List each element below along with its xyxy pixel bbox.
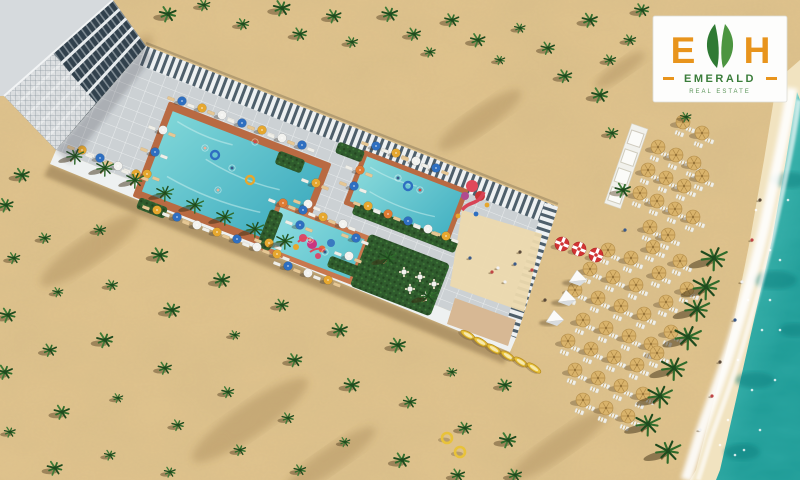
umbrella-apex <box>636 364 638 366</box>
umbrella-apex <box>299 224 301 226</box>
palm-crown <box>426 294 429 297</box>
chair <box>415 276 417 278</box>
table <box>417 274 422 279</box>
bush-center <box>3 370 7 374</box>
bush-center <box>351 41 354 44</box>
foam-fleck <box>779 329 782 332</box>
umbrella-apex <box>287 265 289 267</box>
bush-center <box>598 93 602 97</box>
umbrella-apex <box>628 335 630 337</box>
person-dot <box>518 250 521 253</box>
bush-center <box>476 38 479 41</box>
swimmer-dot <box>309 239 312 242</box>
splash-toy <box>315 253 321 259</box>
bush-center <box>503 383 506 386</box>
umbrella-apex <box>395 152 397 154</box>
umbrella-apex <box>146 173 148 175</box>
person-dot <box>503 280 506 283</box>
palm-crown <box>386 256 389 259</box>
bush-center <box>109 454 112 457</box>
foam-fleck <box>737 359 740 362</box>
umbrella-apex <box>656 352 658 354</box>
foam-fleck <box>719 444 722 447</box>
bush-center <box>234 334 236 336</box>
umbrella-apex <box>613 356 615 358</box>
resort-aerial-render: E H EMERALD REAL ESTATE <box>0 0 800 480</box>
palm-crown <box>672 366 677 371</box>
person-dot <box>543 298 546 301</box>
person-dot <box>623 228 626 231</box>
palm-crown <box>712 256 717 261</box>
umbrella-apex <box>667 234 669 236</box>
swimmer-dot <box>254 141 257 144</box>
logo-brand-text: EMERALD <box>684 73 756 85</box>
bush-center <box>546 46 549 49</box>
umbrella-apex <box>181 100 183 102</box>
umbrella-apex <box>196 224 198 226</box>
umbrella-apex <box>276 253 278 255</box>
person-dot <box>490 270 493 273</box>
bush-center <box>163 366 166 369</box>
bush-center <box>9 431 12 434</box>
foam-fleck <box>787 199 790 202</box>
umbrella-apex <box>574 369 576 371</box>
umbrella-apex <box>156 209 158 211</box>
umbrella-apex <box>630 257 632 259</box>
umbrella-apex <box>307 272 309 274</box>
umbrella-apex <box>327 279 329 281</box>
deep-water-patch <box>735 372 775 388</box>
bush-center <box>629 39 632 42</box>
person-dot <box>530 268 533 271</box>
bush-center <box>298 32 301 35</box>
bush-center <box>412 32 415 35</box>
chair <box>429 283 431 285</box>
bush-center <box>611 132 614 135</box>
palm-crown <box>704 285 709 290</box>
umbrella-apex <box>236 238 238 240</box>
bush-center <box>111 284 114 287</box>
palm-crown <box>193 203 196 206</box>
bush-center <box>621 188 625 192</box>
foam-fleck <box>769 299 772 302</box>
foam-fleck <box>774 379 777 382</box>
umbrella-apex <box>635 284 637 286</box>
foam-fleck <box>747 299 750 302</box>
palm-crown <box>646 422 650 426</box>
table <box>401 269 406 274</box>
bush-center <box>44 237 47 240</box>
umbrella-apex <box>597 377 599 379</box>
bush-center <box>563 74 566 77</box>
bush-center <box>456 473 459 476</box>
logo-dash-right <box>766 77 777 80</box>
umbrella-apex <box>302 209 304 211</box>
umbrella-apex <box>643 313 645 315</box>
umbrella-apex <box>427 228 429 230</box>
foam-fleck <box>734 454 737 457</box>
person-dot <box>513 262 516 265</box>
bush-center <box>463 426 466 429</box>
bush-center <box>280 6 284 10</box>
bush-center <box>177 424 180 427</box>
float-center <box>594 253 598 257</box>
umbrella-apex <box>665 301 667 303</box>
bush-center <box>166 12 170 16</box>
umbrella-apex <box>657 146 659 148</box>
bush-center <box>513 473 516 476</box>
umbrella-apex <box>435 167 437 169</box>
umbrella-apex <box>256 246 258 248</box>
scene-canvas: E H EMERALD REAL ESTATE <box>0 0 800 480</box>
umbrella-apex <box>652 246 654 248</box>
umbrella-apex <box>620 305 622 307</box>
bush-center <box>239 449 242 452</box>
bush-center <box>299 469 302 472</box>
chair <box>405 288 407 290</box>
bush-center <box>103 338 107 342</box>
umbrella-apex <box>367 205 369 207</box>
splash-toy <box>327 239 335 247</box>
umbrella-apex <box>154 151 156 153</box>
bush-center <box>408 400 411 403</box>
umbrella-apex <box>201 107 203 109</box>
umbrella-apex <box>216 231 218 233</box>
bush-center <box>20 173 24 177</box>
umbrella-apex <box>665 177 667 179</box>
bush-center <box>450 18 453 21</box>
umbrella-apex <box>261 129 263 131</box>
palm-crown <box>253 227 256 230</box>
emerald-logo-card: E H EMERALD REAL ESTATE <box>653 16 787 102</box>
foam-fleck <box>755 209 758 212</box>
bush-center <box>99 229 102 232</box>
bush-center <box>429 51 432 54</box>
slide-detail <box>485 203 490 208</box>
umbrella-apex <box>322 216 324 218</box>
umbrella-apex <box>282 202 284 204</box>
bush-center <box>640 8 643 11</box>
bush-center <box>332 14 335 17</box>
chair <box>407 271 409 273</box>
float-center <box>560 242 564 246</box>
chair <box>423 276 425 278</box>
umbrella-apex <box>693 162 695 164</box>
umbrella-apex <box>692 216 694 218</box>
bush-center <box>227 391 230 394</box>
umbrella-apex <box>307 203 309 205</box>
foam-fleck <box>727 419 730 422</box>
deep-water-patch <box>724 444 760 460</box>
slide-detail <box>474 212 479 217</box>
umbrella-apex <box>670 331 672 333</box>
chair <box>437 283 439 285</box>
umbrella-apex <box>649 226 651 228</box>
umbrella-apex <box>589 268 591 270</box>
umbrella-apex <box>642 393 644 395</box>
person-dot <box>740 280 743 283</box>
bush-center <box>170 308 174 312</box>
bush-center <box>506 438 510 442</box>
chair <box>413 288 415 290</box>
umbrella-apex <box>582 319 584 321</box>
bush-center <box>396 343 400 347</box>
bush-center <box>609 59 612 62</box>
palm-crown <box>283 239 286 242</box>
chair <box>399 271 401 273</box>
splash-toy <box>293 244 299 250</box>
umbrella-apex <box>415 160 417 162</box>
umbrella-apex <box>612 276 614 278</box>
palm-crown <box>686 335 691 340</box>
umbrella-apex <box>675 154 677 156</box>
foam-fleck <box>761 329 764 332</box>
umbrella-apex <box>301 144 303 146</box>
person-dot <box>710 394 713 397</box>
bush-center <box>451 371 453 373</box>
umbrella-apex <box>701 132 703 134</box>
bush-center <box>242 23 245 26</box>
chair <box>419 280 421 282</box>
bush-center <box>519 27 522 30</box>
palm-crown <box>223 215 226 218</box>
umbrella-apex <box>683 185 685 187</box>
bush-center <box>220 278 224 282</box>
chair <box>433 279 435 281</box>
swimmer-dot <box>217 189 220 192</box>
logo-tagline-text: REAL ESTATE <box>689 89 751 95</box>
slide-detail <box>456 214 461 219</box>
bush-center <box>350 383 354 387</box>
palm-crown <box>666 449 670 453</box>
foam-fleck <box>751 389 754 392</box>
umbrella-apex <box>445 235 447 237</box>
person-dot <box>750 238 753 241</box>
person-dot <box>758 198 761 201</box>
umbrella-apex <box>605 327 607 329</box>
umbrella-apex <box>647 169 649 171</box>
umbrella-apex <box>241 122 243 124</box>
umbrella-apex <box>81 149 83 151</box>
bush-center <box>57 291 59 293</box>
bush-center <box>53 466 57 470</box>
umbrella-apex <box>658 272 660 274</box>
slide-tower <box>466 180 478 192</box>
bush-center <box>158 253 162 257</box>
swimmer-dot <box>419 189 422 192</box>
chair <box>419 272 421 274</box>
foam-fleck <box>759 429 762 432</box>
chair <box>403 267 405 269</box>
person-dot <box>733 318 736 321</box>
palm-crown <box>695 307 699 311</box>
bush-center <box>13 257 16 260</box>
umbrella-apex <box>355 237 357 239</box>
umbrella-apex <box>656 200 658 202</box>
float-center <box>577 247 581 251</box>
umbrella-apex <box>315 182 317 184</box>
umbrella-apex <box>407 220 409 222</box>
umbrella-apex <box>607 249 609 251</box>
swimmer-dot <box>324 251 327 254</box>
logo-dash-left <box>663 77 674 80</box>
umbrella-apex <box>281 137 283 139</box>
swimmer-dot <box>231 167 234 170</box>
person-dot <box>468 256 471 259</box>
umbrella-apex <box>342 223 344 225</box>
umbrella-apex <box>375 145 377 147</box>
person-dot <box>698 428 701 431</box>
chair <box>409 284 411 286</box>
bush-center <box>400 458 404 462</box>
umbrella-apex <box>353 185 355 187</box>
bush-center <box>117 397 119 399</box>
bush-center <box>293 358 296 361</box>
umbrella-apex <box>268 242 270 244</box>
bush-center <box>60 410 64 414</box>
bush-center <box>203 4 206 7</box>
bush-center <box>287 417 290 420</box>
umbrella-apex <box>605 407 607 409</box>
foam-fleck <box>769 249 772 252</box>
foam-fleck <box>779 259 782 262</box>
swimmer-dot <box>204 147 207 150</box>
umbrella-apex <box>99 157 101 159</box>
slide-tower <box>461 192 469 200</box>
bush-center <box>344 441 346 443</box>
person-dot <box>718 360 721 363</box>
logo-letter-e: E <box>671 30 696 71</box>
umbrella-apex <box>387 213 389 215</box>
umbrella-apex <box>221 114 223 116</box>
umbrella-apex <box>567 340 569 342</box>
bush-center <box>48 348 51 351</box>
chair <box>433 287 435 289</box>
swimmer-dot <box>397 177 400 180</box>
bush-center <box>169 471 172 474</box>
palm-crown <box>163 191 166 194</box>
bush-center <box>499 59 501 61</box>
palm-crown <box>658 394 662 398</box>
foam-fleck <box>743 449 746 452</box>
bush-center <box>388 12 392 16</box>
bush-center <box>685 116 688 119</box>
chair <box>409 292 411 294</box>
umbrella-apex <box>701 175 703 177</box>
umbrella-apex <box>679 260 681 262</box>
umbrella-apex <box>582 399 584 401</box>
umbrella-apex <box>650 343 652 345</box>
bush-center <box>338 328 342 332</box>
logo-letter-h: H <box>744 30 771 71</box>
bush-center <box>4 203 7 206</box>
umbrella-apex <box>620 385 622 387</box>
table <box>407 286 412 291</box>
umbrella-apex <box>117 165 119 167</box>
umbrella-apex <box>176 216 178 218</box>
umbrella-apex <box>162 129 164 131</box>
umbrella-apex <box>639 192 641 194</box>
bush-center <box>588 18 592 22</box>
palm-crown <box>133 178 136 181</box>
chair <box>403 275 405 277</box>
umbrella-apex <box>590 348 592 350</box>
umbrella-apex <box>135 173 137 175</box>
bush-center <box>280 303 283 306</box>
table <box>431 281 436 286</box>
umbrella-apex <box>597 297 599 299</box>
umbrella-apex <box>359 169 361 171</box>
umbrella-apex <box>674 208 676 210</box>
palm-crown <box>103 166 106 169</box>
bush-center <box>6 313 10 317</box>
umbrella-apex <box>686 288 688 290</box>
person-dot <box>496 266 499 269</box>
umbrella-apex <box>348 255 350 257</box>
umbrella-apex <box>574 289 576 291</box>
umbrella-apex <box>627 415 629 417</box>
